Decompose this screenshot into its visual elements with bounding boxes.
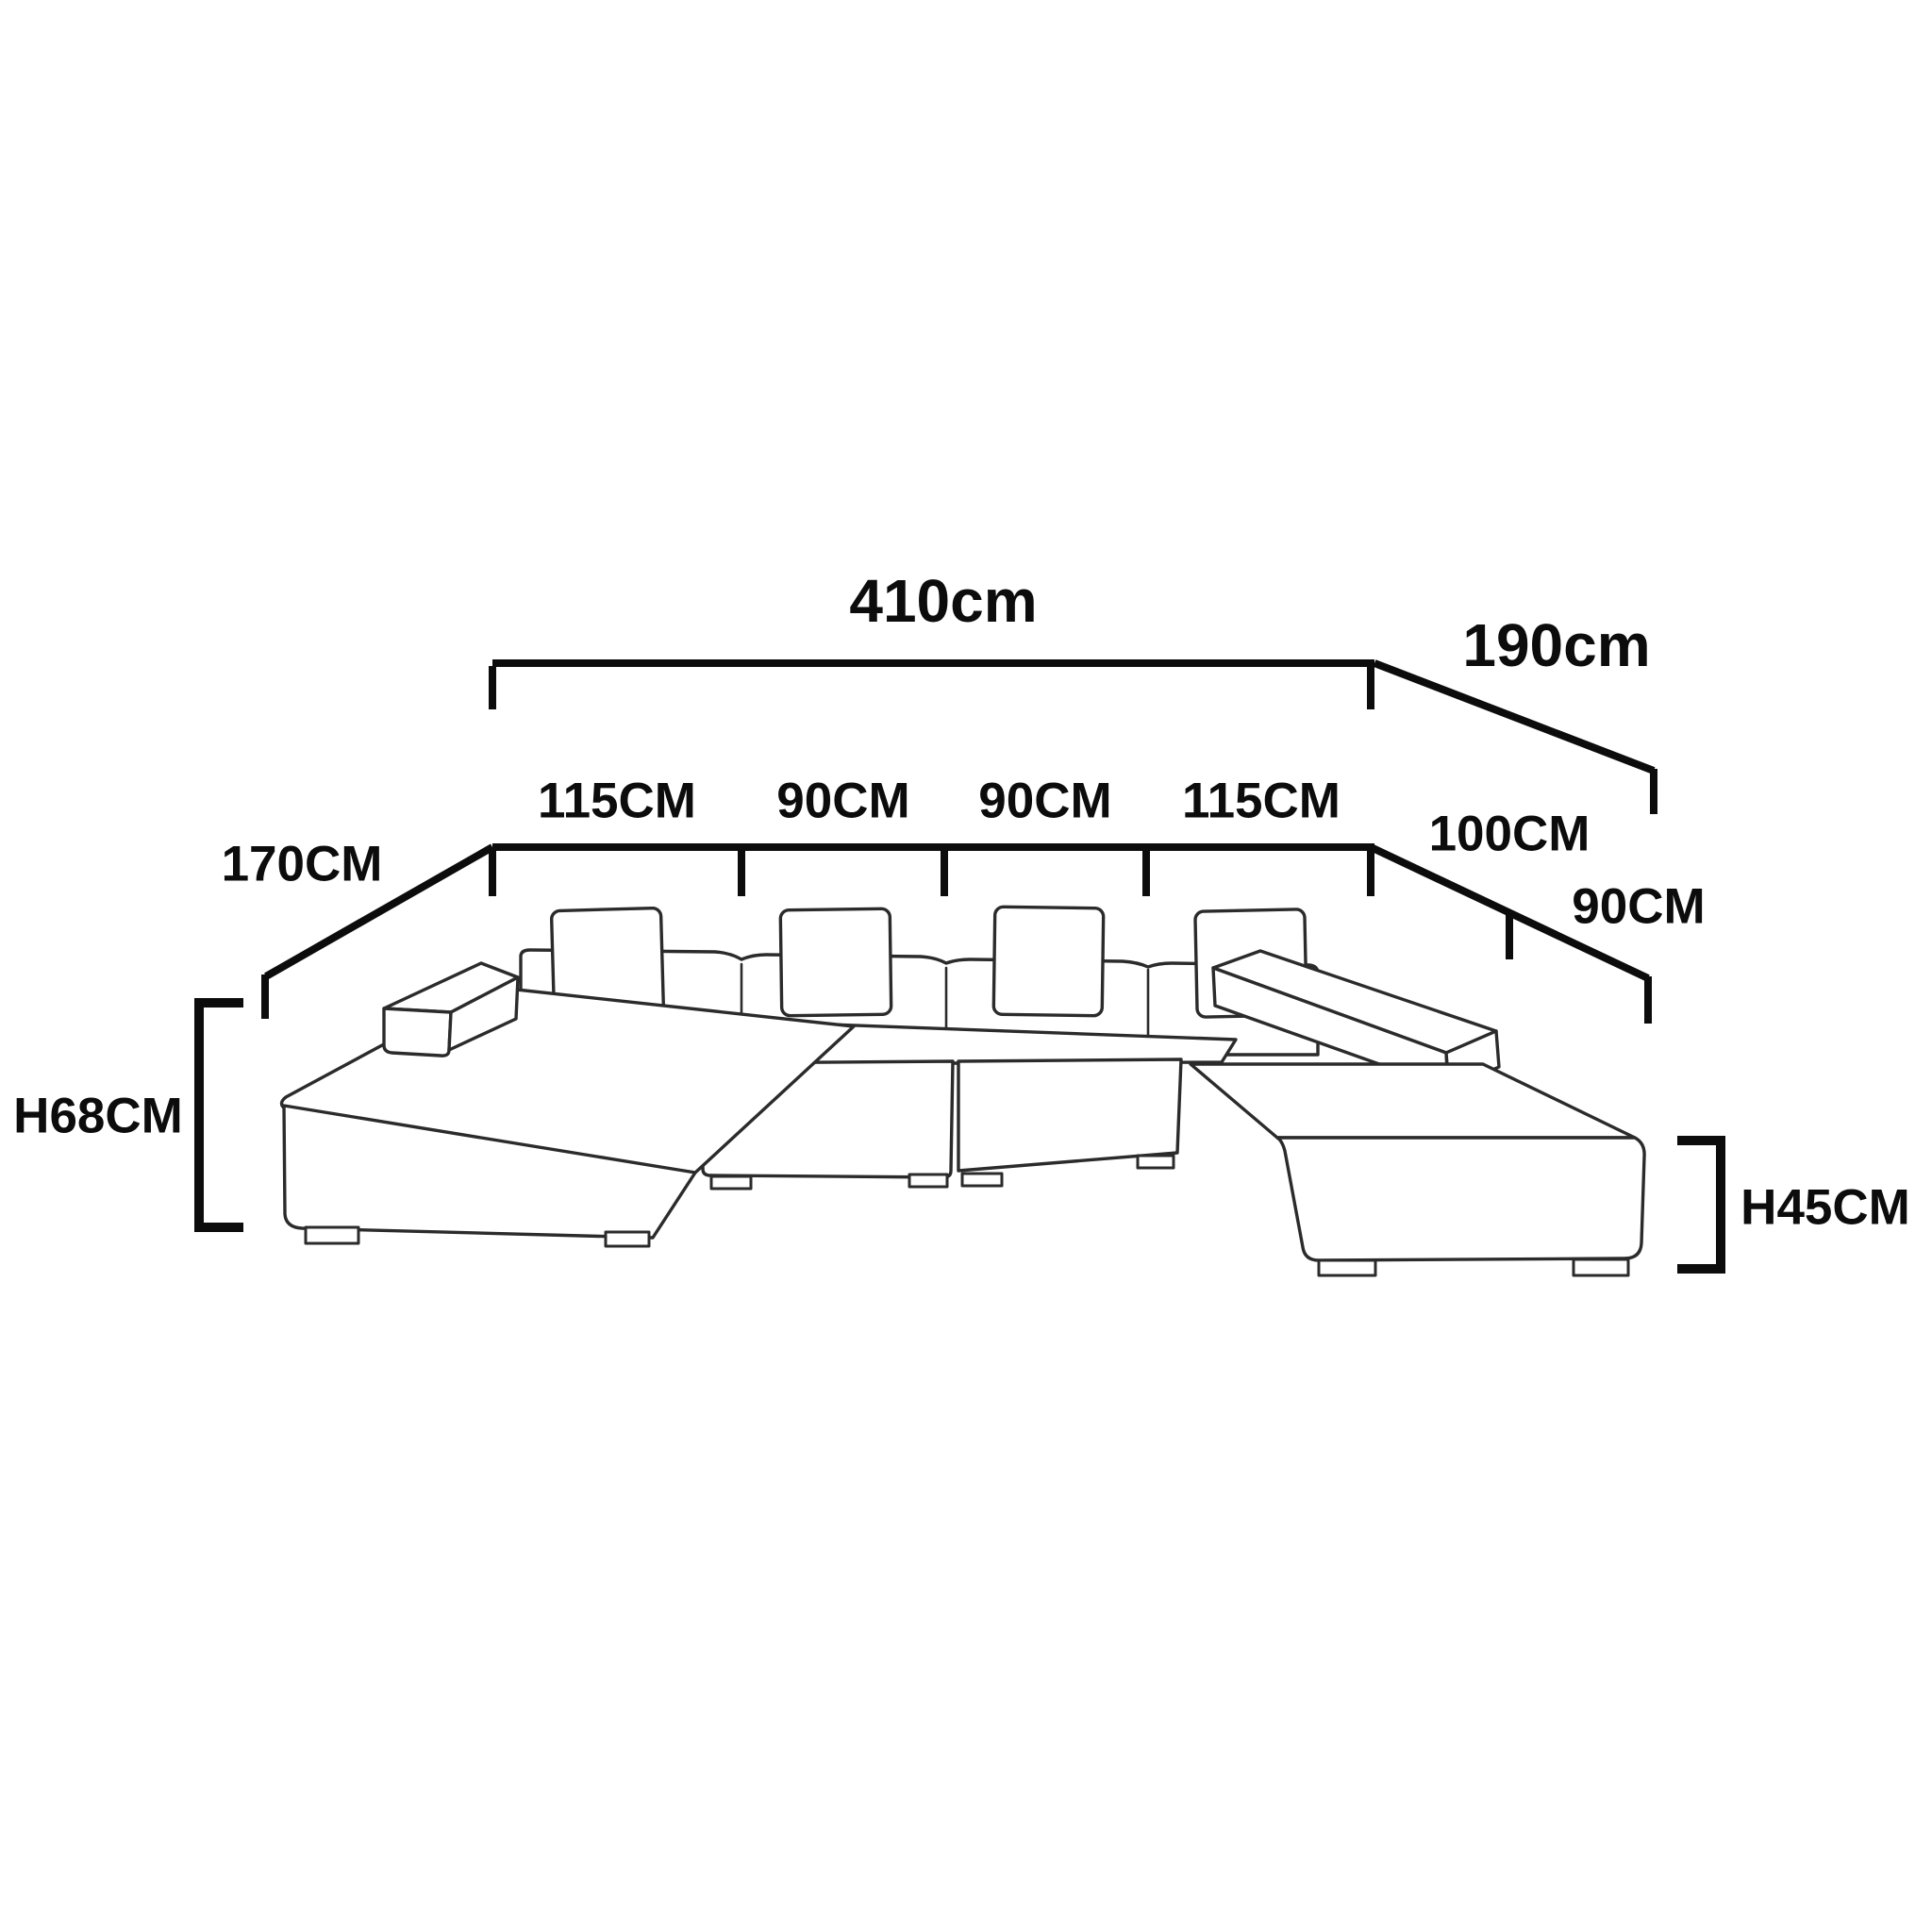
right-outer-depth-label: 190cm [1462, 610, 1650, 680]
segment-1-label: 115CM [538, 773, 696, 830]
overall-width-label: 410cm [849, 566, 1037, 636]
foot [962, 1174, 1002, 1186]
right-inner-depth-back-label: 90CM [1572, 878, 1705, 936]
segment-4-label: 115CM [1182, 773, 1341, 830]
sofa-sketch [282, 907, 1645, 1275]
foot [1319, 1260, 1375, 1275]
seat-2-front [958, 1059, 1181, 1171]
right-inner-depth-front-label: 100CM [1429, 806, 1591, 863]
back-height-label: H68CM [13, 1088, 183, 1145]
back-pillow-2 [780, 908, 891, 1016]
ottoman-top-surface [1191, 1064, 1635, 1138]
left-chaise-depth-label: 170CM [222, 836, 383, 893]
bracket-back-height [199, 1003, 243, 1227]
dimension-diagram: 410cm 190cm 115CM 90CM 90CM 115CM 170CM … [0, 0, 1932, 1932]
segment-3-label: 90CM [978, 773, 1111, 830]
foot [711, 1176, 751, 1189]
bracket-ottoman-height [1677, 1141, 1721, 1269]
ottoman-height-label: H45CM [1740, 1179, 1910, 1237]
left-armrest-end [384, 1008, 451, 1056]
back-pillow-3 [993, 907, 1104, 1016]
foot [606, 1232, 649, 1246]
foot [306, 1227, 358, 1243]
foot [1574, 1259, 1628, 1275]
ottoman-front-face [1277, 1138, 1644, 1260]
foot [909, 1174, 947, 1187]
sofa-line-drawing [0, 0, 1932, 1932]
foot [1138, 1156, 1174, 1168]
segment-2-label: 90CM [776, 773, 909, 830]
